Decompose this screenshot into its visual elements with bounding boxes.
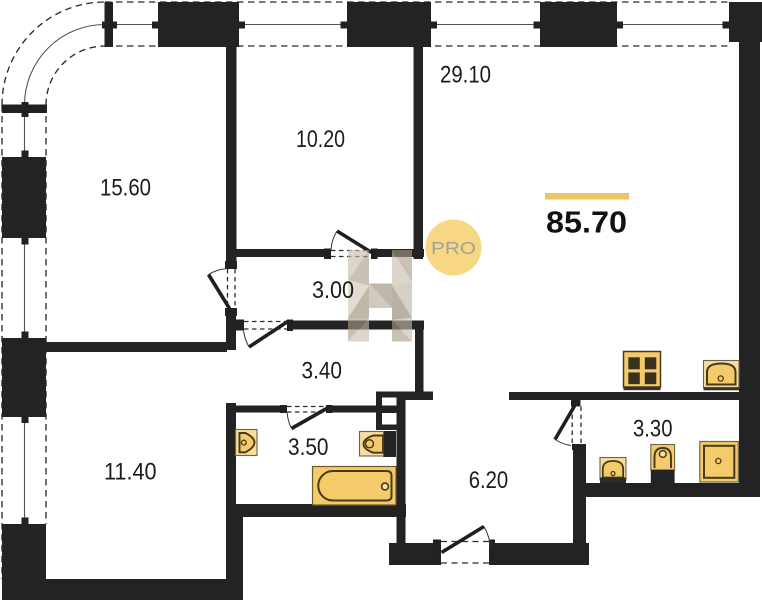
svg-text:11.40: 11.40 [104,459,157,486]
svg-text:3.30: 3.30 [633,416,673,443]
svg-text:PRO: PRO [431,238,476,258]
svg-text:10.20: 10.20 [296,126,345,153]
svg-text:3.40: 3.40 [302,358,343,385]
svg-text:29.10: 29.10 [440,62,491,89]
svg-text:3.00: 3.00 [312,277,354,304]
svg-text:15.60: 15.60 [100,175,151,202]
svg-text:3.50: 3.50 [288,434,329,461]
svg-text:85.70: 85.70 [546,206,627,240]
svg-text:6.20: 6.20 [469,467,509,494]
